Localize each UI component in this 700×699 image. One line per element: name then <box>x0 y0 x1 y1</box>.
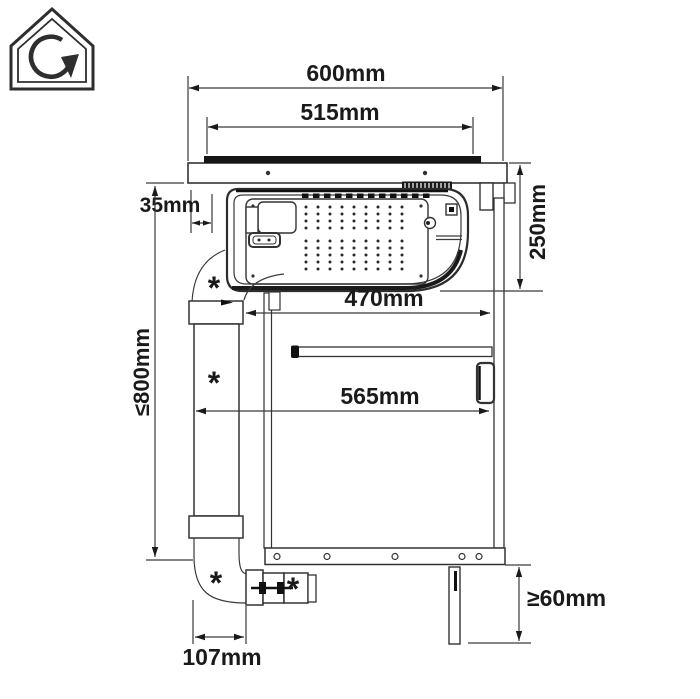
drawer-rail-cap <box>291 346 299 359</box>
house-inner-outline-icon <box>18 19 86 82</box>
worktop-screw-dot <box>423 171 427 175</box>
asterisk-marker: * <box>287 571 300 607</box>
dimension-label-250mm: 250mm <box>525 184 550 260</box>
power-plug <box>249 233 280 247</box>
hob-glass <box>204 156 481 163</box>
cabinet-side-panel <box>494 198 504 548</box>
duct-end-cap <box>308 575 316 602</box>
asterisk-marker: * <box>208 270 221 306</box>
worktop-screw-dot <box>266 171 270 175</box>
junction-box-side <box>246 207 258 233</box>
dimension-label-565mm: 565mm <box>340 383 419 409</box>
dimension-label-600mm: 600mm <box>306 60 385 86</box>
dimension-107mm: 107mm <box>182 600 261 670</box>
dimension-565mm: 565mm <box>196 383 489 414</box>
hob-unit <box>227 189 468 291</box>
worktop-slab <box>188 163 507 183</box>
asterisk-marker: * <box>210 565 223 601</box>
elbow-inner <box>239 538 248 574</box>
drawer-rail <box>292 347 492 357</box>
dimension-label-470mm: 470mm <box>344 285 423 311</box>
cabinet-bottom-shelf <box>265 548 505 565</box>
asterisk-marker: * <box>208 365 221 401</box>
duct-collar-bottom <box>189 516 243 538</box>
dimension-800mm: ≤800mm <box>129 183 193 560</box>
dimension-35mm: 35mm <box>140 190 212 233</box>
dimension-label-800mm: ≤800mm <box>129 328 154 416</box>
installation-diagram: * * * * 600mm 515mm 35mm 250mm <box>0 0 700 699</box>
recirculation-icon <box>11 9 93 89</box>
inner-panel <box>264 293 272 548</box>
dimension-label-515mm: 515mm <box>300 99 379 125</box>
dimension-label-60mm: ≥60mm <box>527 585 606 611</box>
worktop-edge-notch <box>504 183 515 203</box>
inner-panel-cap <box>269 292 280 310</box>
dimension-515mm: 515mm <box>207 99 473 154</box>
junction-box <box>258 202 296 233</box>
dimension-label-107mm: 107mm <box>182 644 261 670</box>
duct-vertical <box>194 324 239 516</box>
dimension-label-35mm: 35mm <box>140 194 201 217</box>
dimension-60mm: ≥60mm <box>468 565 606 643</box>
mounting-bracket <box>480 183 493 210</box>
